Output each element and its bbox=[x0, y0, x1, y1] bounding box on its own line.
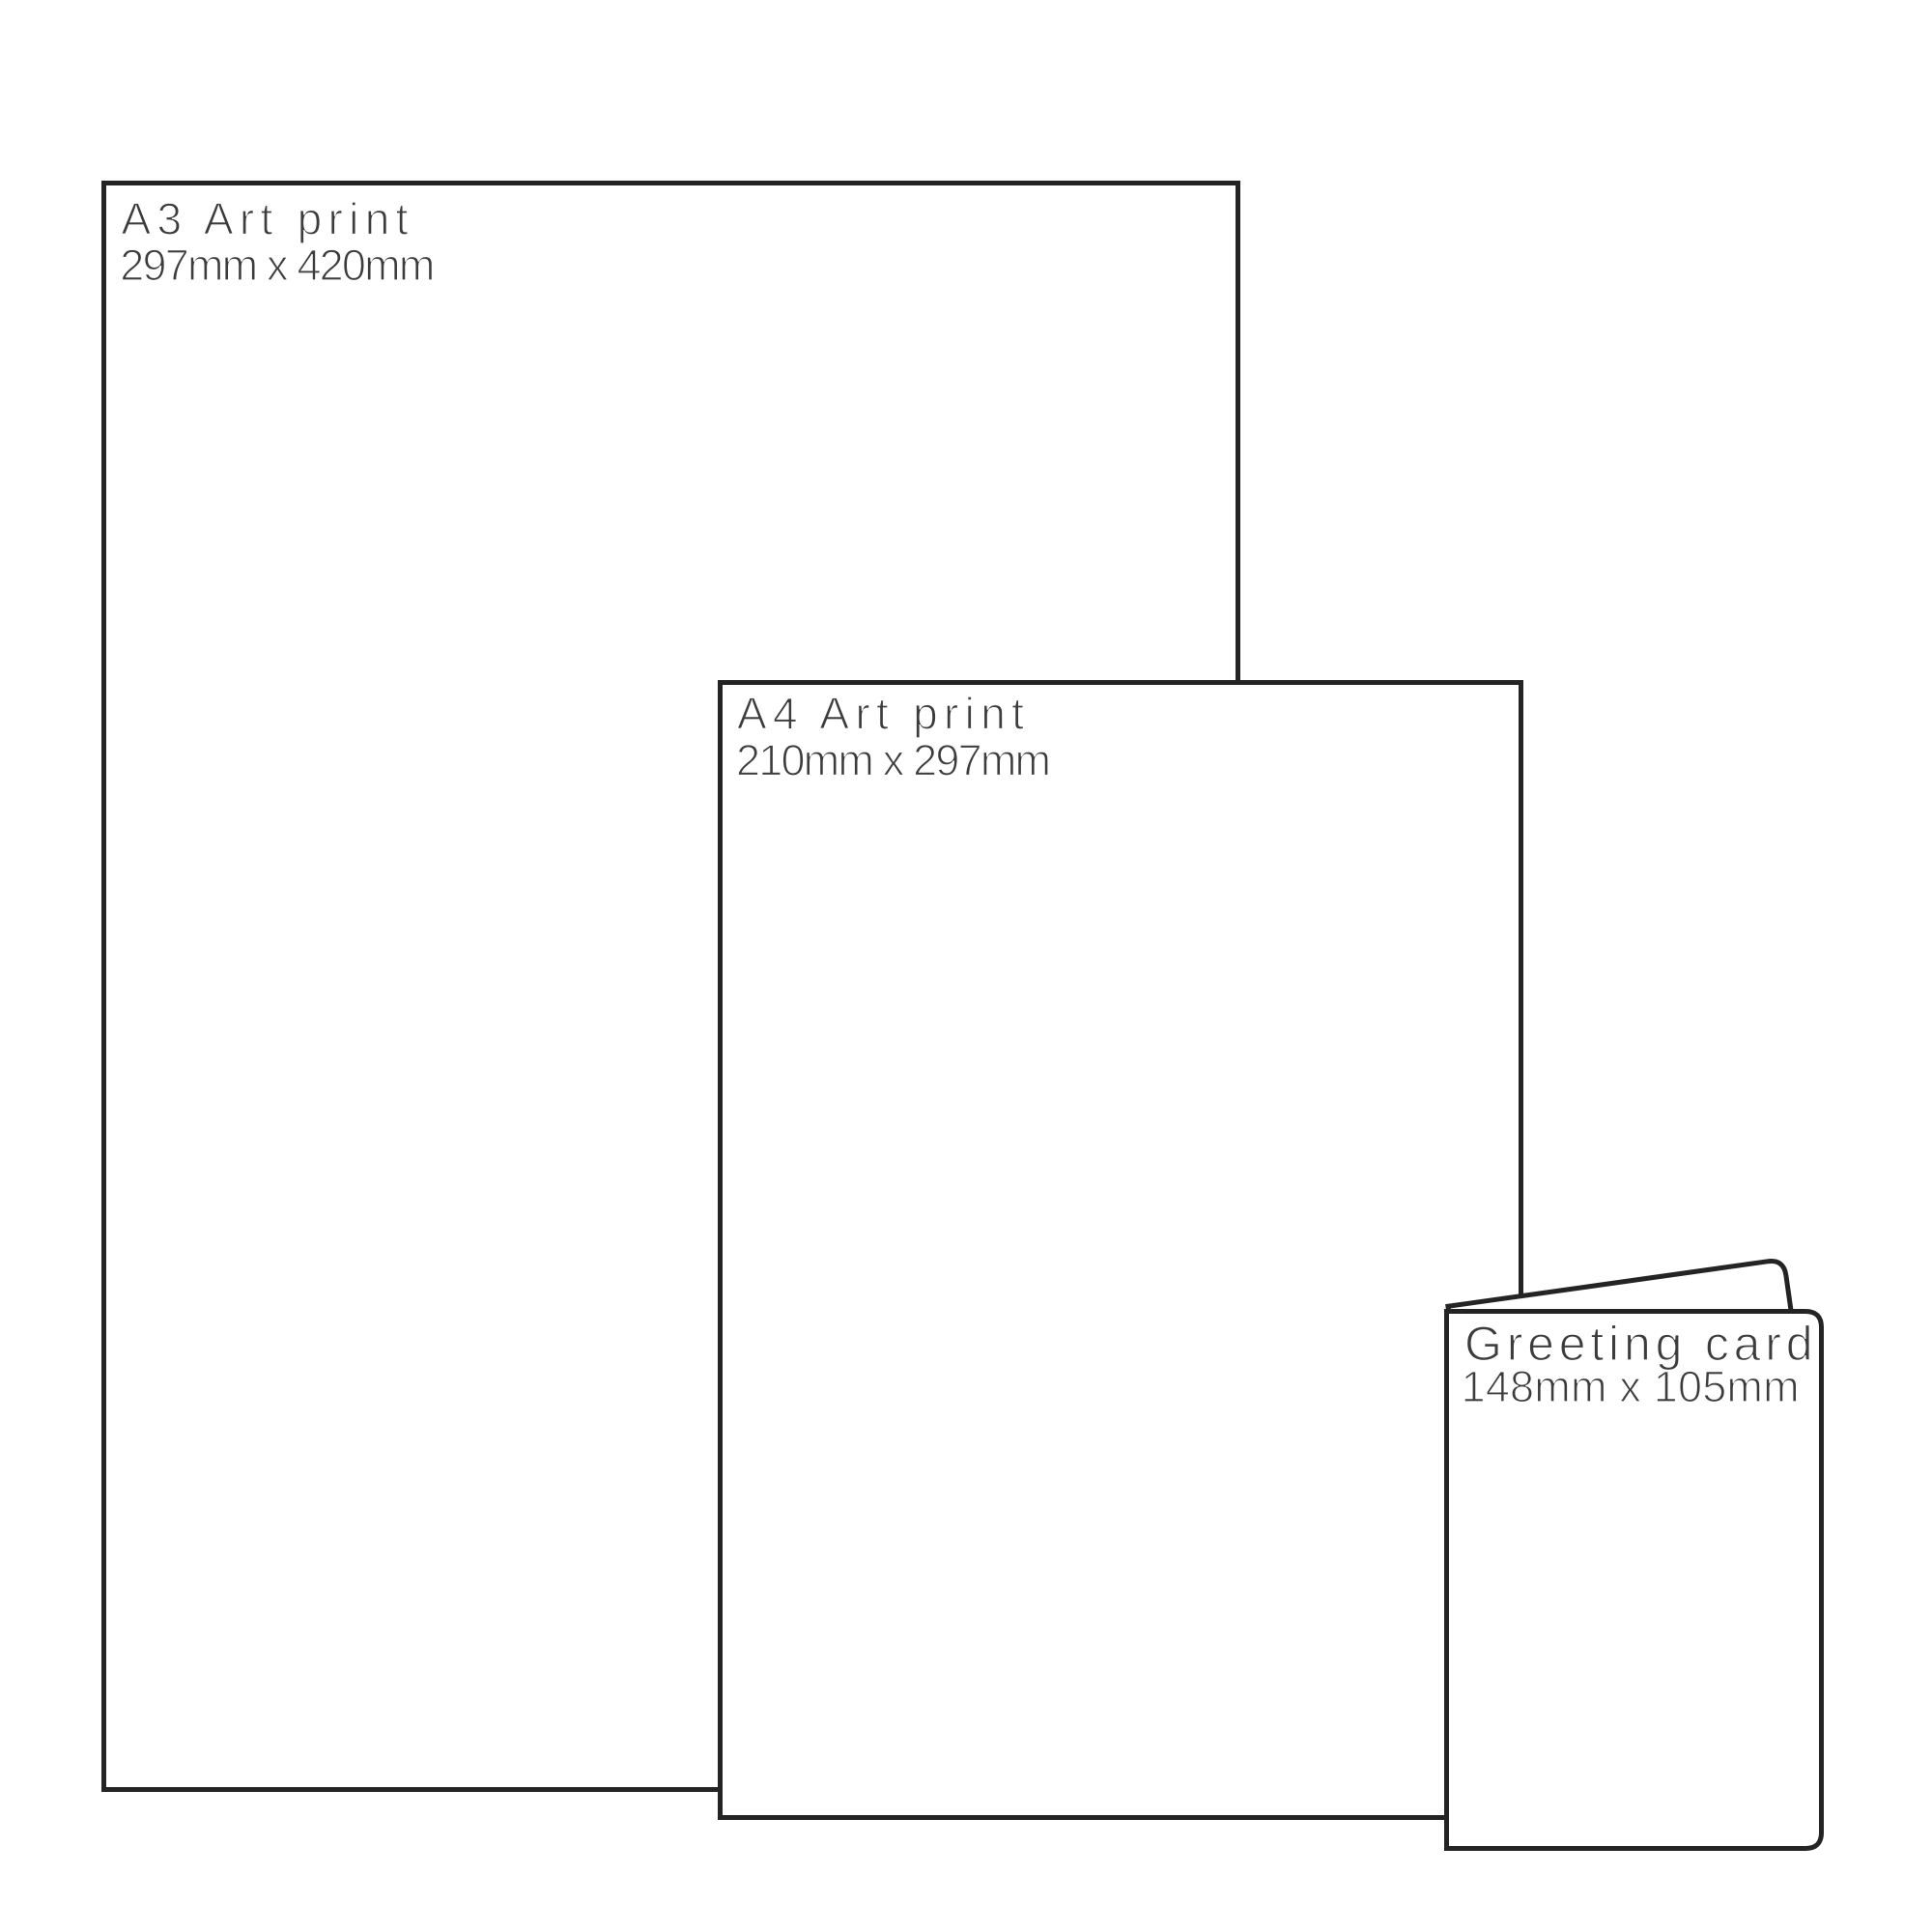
svg-text:210mm x 297mm: 210mm x 297mm bbox=[736, 736, 1049, 785]
svg-text:297mm x 420mm: 297mm x 420mm bbox=[120, 241, 433, 290]
svg-text:A3 Art print: A3 Art print bbox=[122, 193, 414, 243]
svg-text:A4 Art print: A4 Art print bbox=[737, 689, 1030, 739]
svg-text:148mm x 105mm: 148mm x 105mm bbox=[1462, 1362, 1800, 1411]
